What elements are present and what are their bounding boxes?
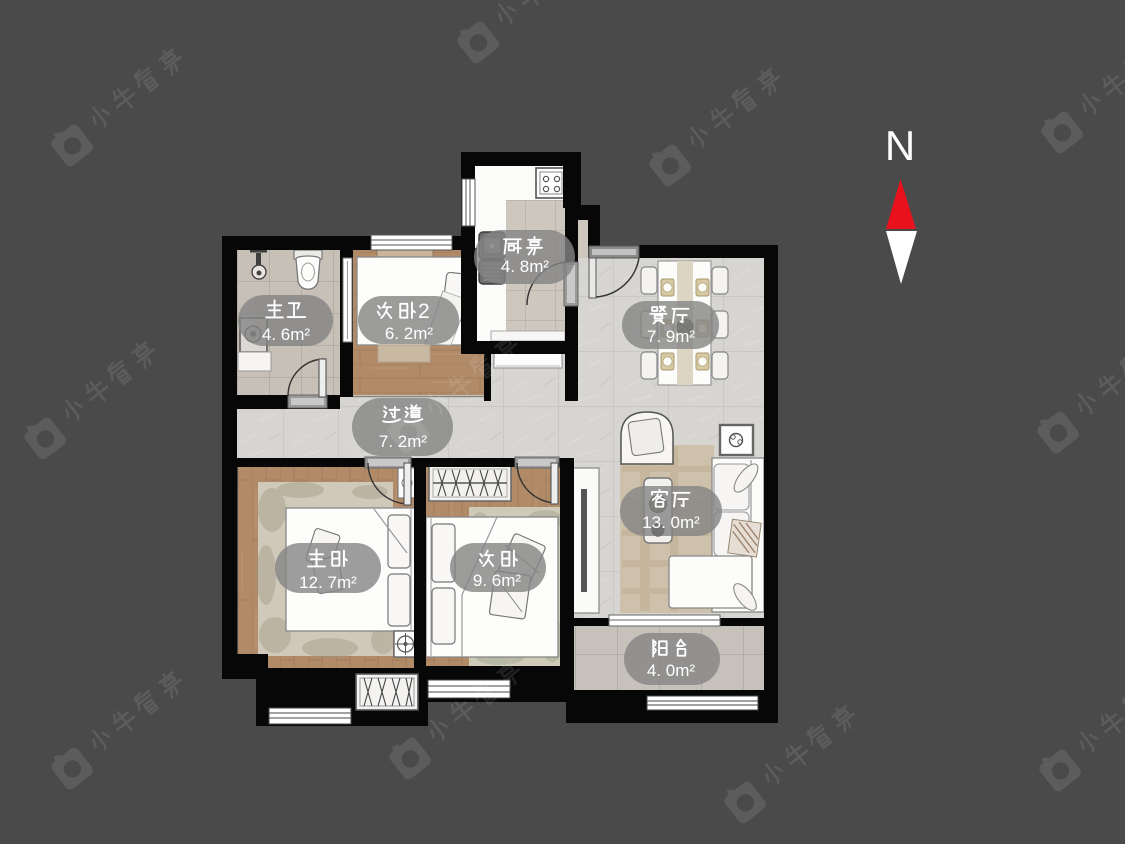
svg-text:9. 6m²: 9. 6m² [473,571,522,590]
svg-text:7. 9m²: 7. 9m² [647,327,696,346]
svg-text:12. 7m²: 12. 7m² [299,573,357,592]
svg-text:N: N [885,122,915,169]
svg-text:13. 0m²: 13. 0m² [642,513,700,532]
svg-text:4. 8m²: 4. 8m² [501,257,550,276]
svg-text:6. 2m²: 6. 2m² [385,324,434,343]
svg-text:4. 6m²: 4. 6m² [262,325,311,344]
svg-text:4. 0m²: 4. 0m² [647,661,696,680]
svg-text:2: 2 [418,300,430,323]
